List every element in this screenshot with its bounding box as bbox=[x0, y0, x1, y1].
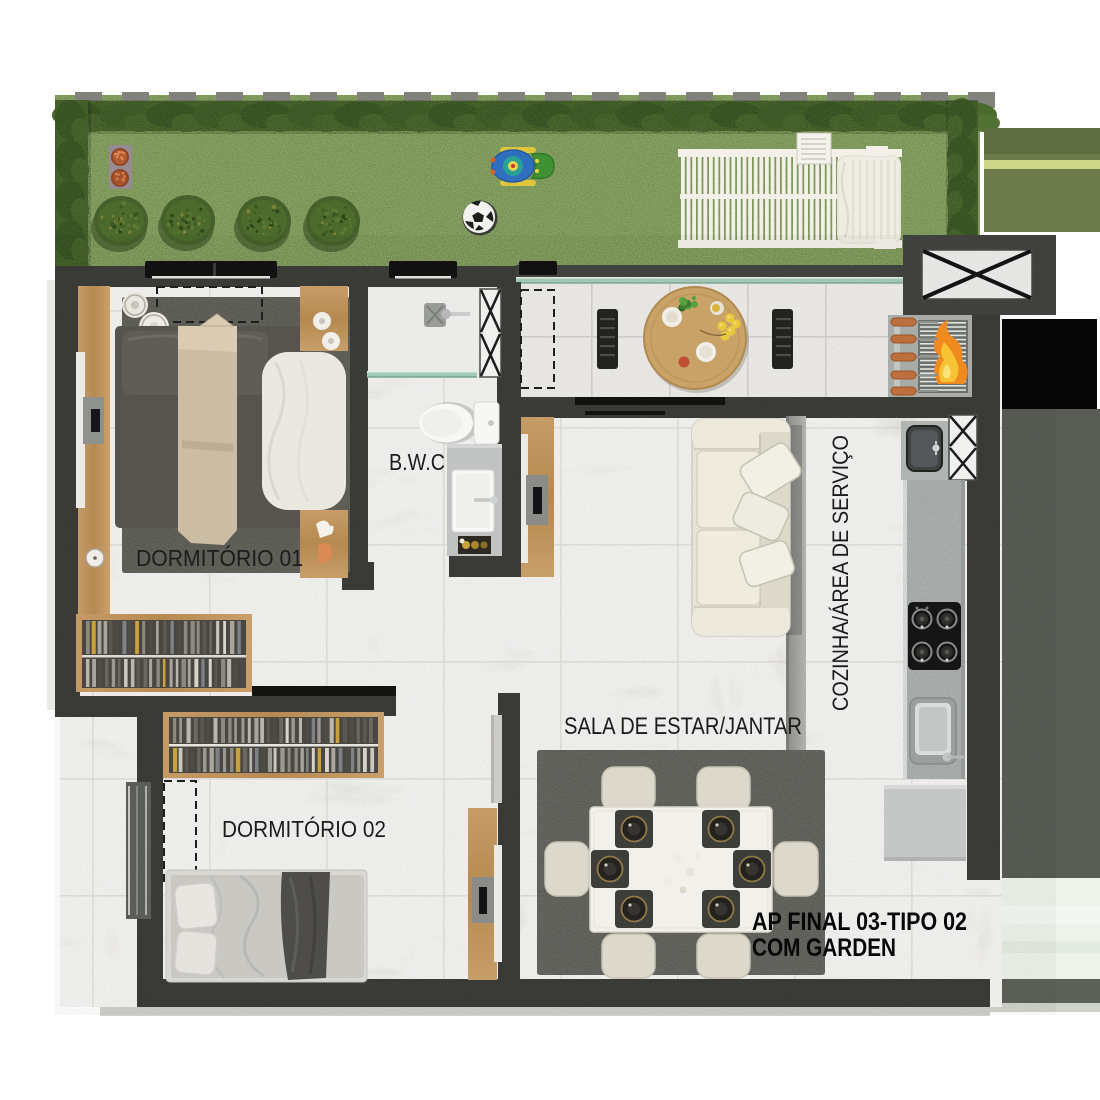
svg-text:AP FINAL 03-TIPO 02: AP FINAL 03-TIPO 02 bbox=[752, 908, 967, 936]
svg-text:DORMITÓRIO 01: DORMITÓRIO 01 bbox=[136, 545, 303, 571]
svg-text:B.W.C: B.W.C bbox=[389, 449, 445, 475]
svg-text:DORMITÓRIO 02: DORMITÓRIO 02 bbox=[222, 816, 386, 842]
svg-text:COZINHA/ÁREA DE SERVIÇO: COZINHA/ÁREA DE SERVIÇO bbox=[828, 435, 853, 711]
svg-text:COM GARDEN: COM GARDEN bbox=[752, 934, 896, 962]
svg-text:SALA DE ESTAR/JANTAR: SALA DE ESTAR/JANTAR bbox=[564, 713, 802, 740]
